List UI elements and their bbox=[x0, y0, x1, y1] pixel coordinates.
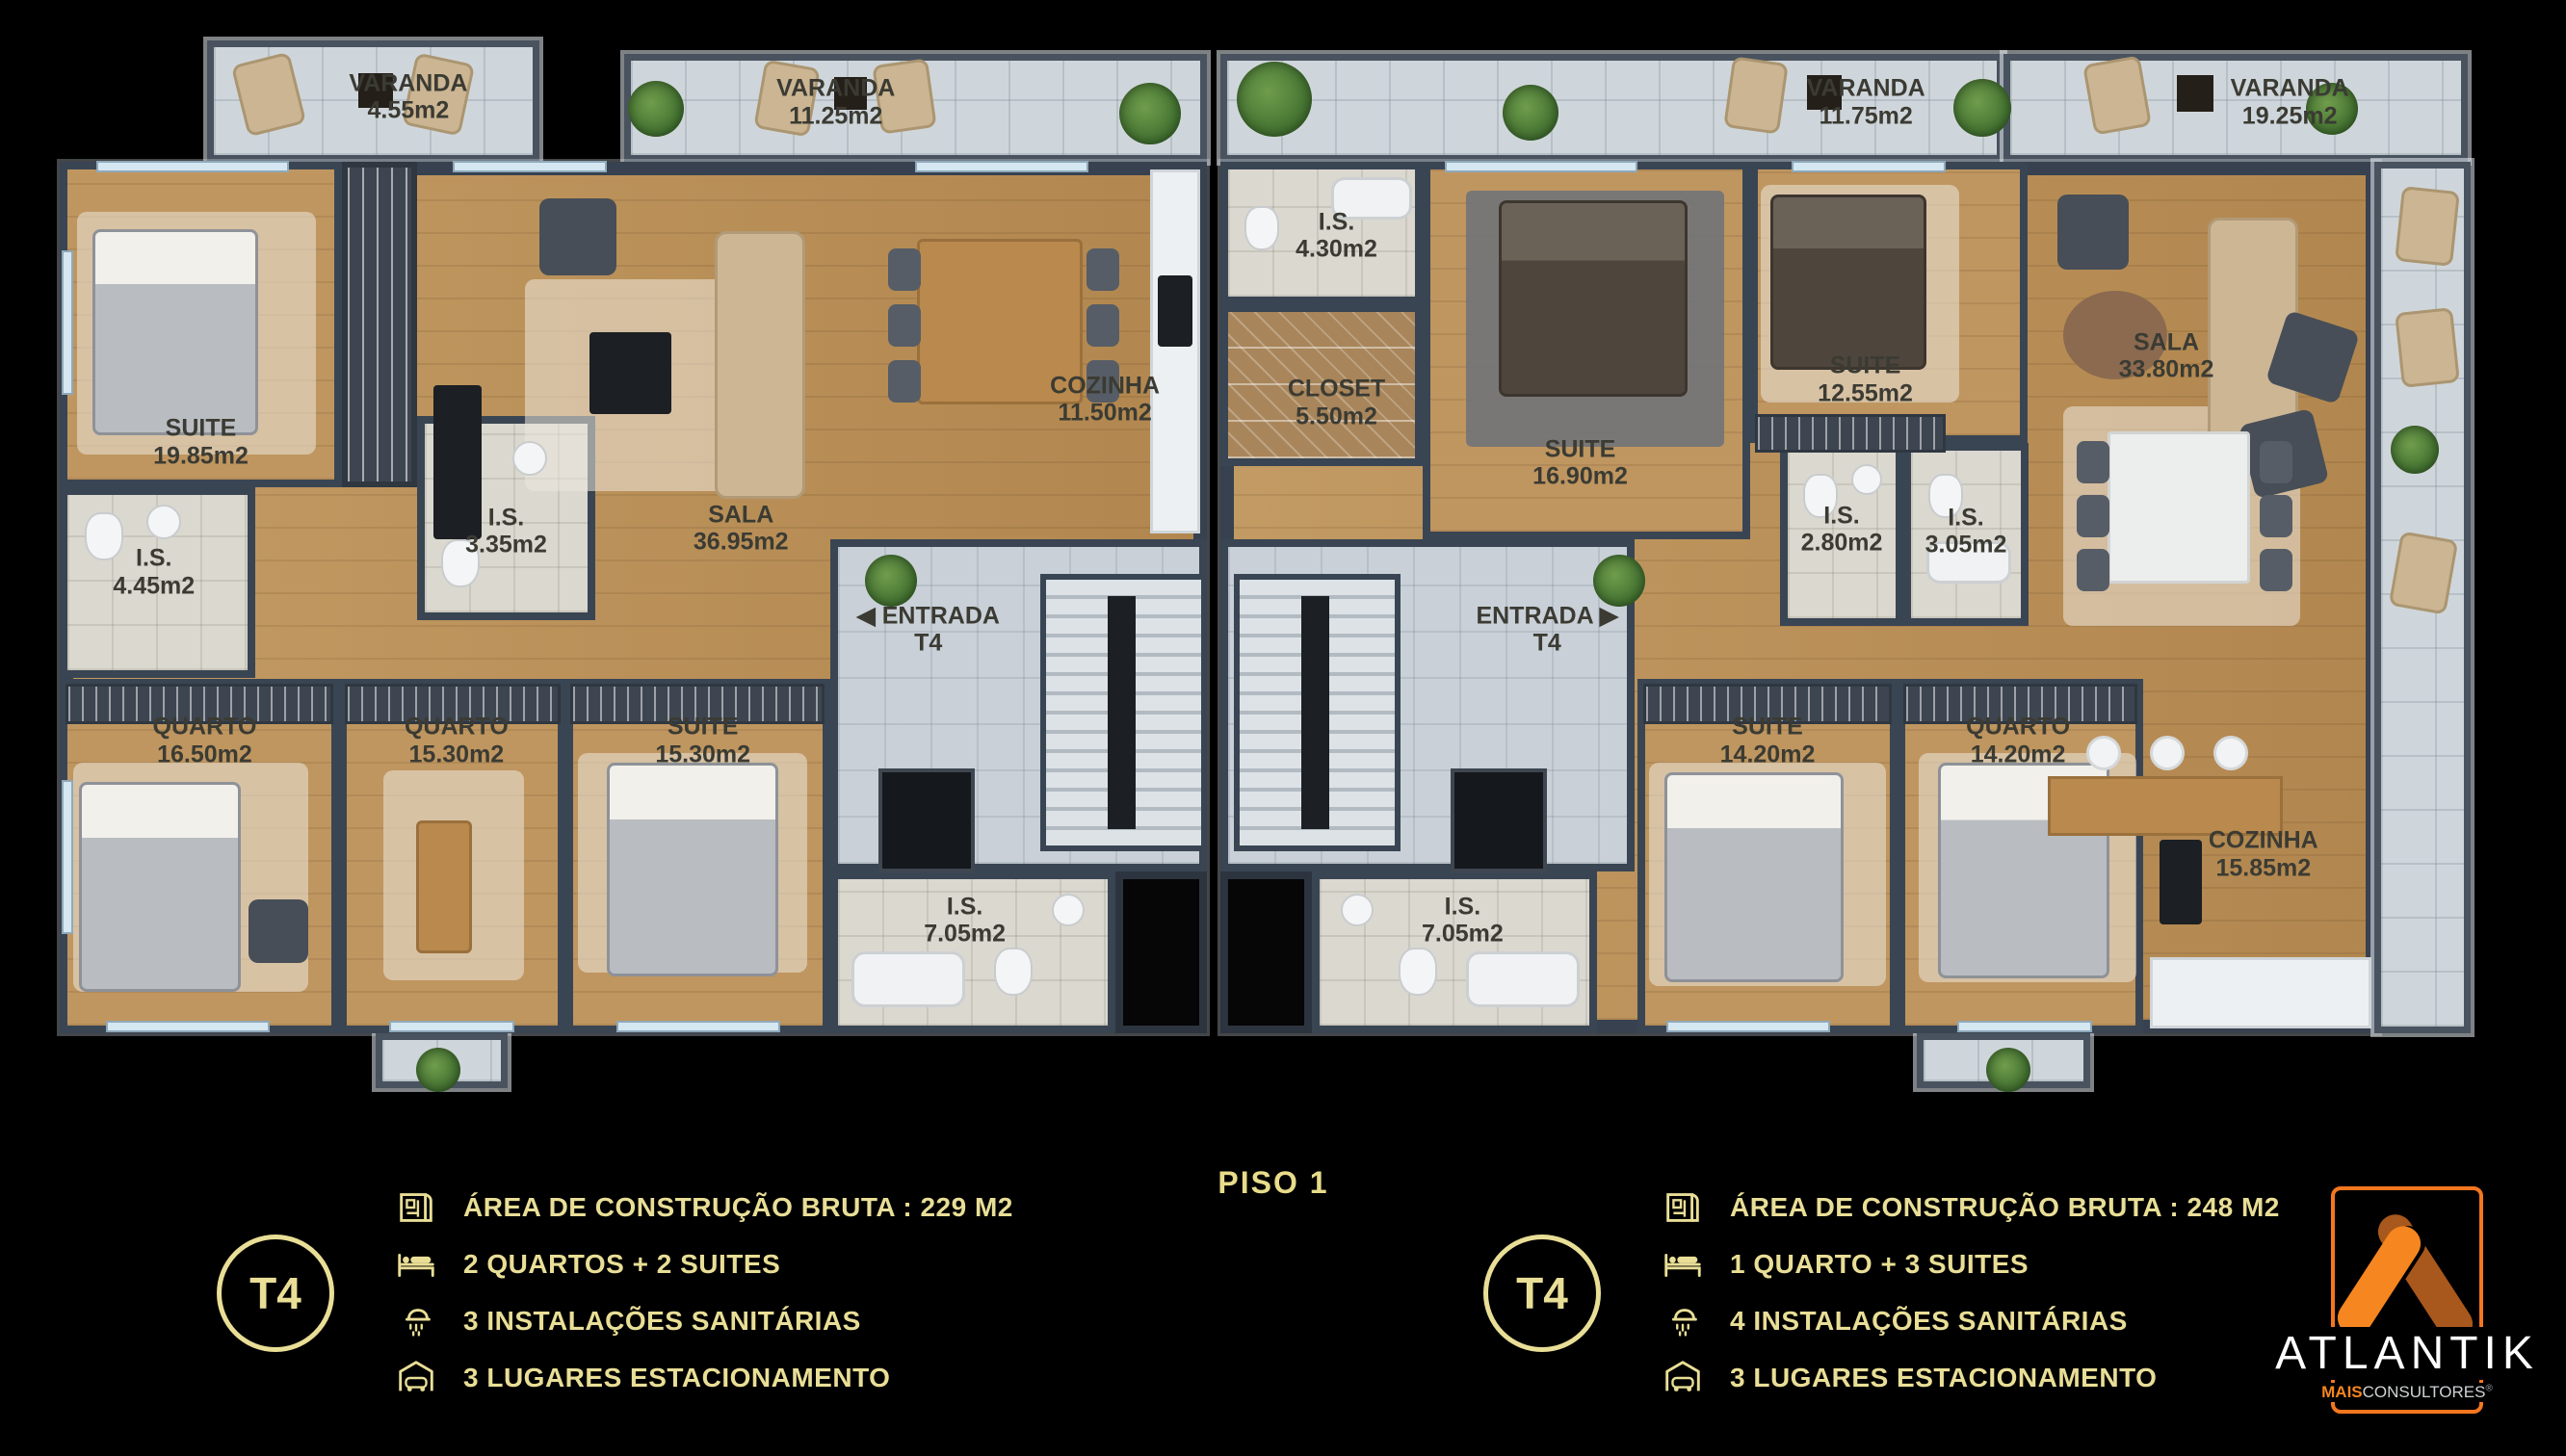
room-label-is-3-05: I.S.3.05m2 bbox=[1925, 504, 2007, 559]
window bbox=[62, 780, 73, 934]
window bbox=[389, 1021, 514, 1032]
legend-item: 3 LUGARES ESTACIONAMENTO bbox=[1661, 1357, 2280, 1399]
chair bbox=[1087, 360, 1119, 403]
stool bbox=[2213, 736, 2248, 770]
counter bbox=[2150, 957, 2371, 1028]
bed bbox=[92, 229, 258, 435]
legend-item: 4 INSTALAÇÕES SANITÁRIAS bbox=[1661, 1300, 2280, 1342]
room-stairs-right bbox=[1234, 574, 1401, 851]
t4-badge: T4 bbox=[1483, 1235, 1601, 1352]
chair bbox=[888, 248, 921, 291]
room-label-suite-19-85: SUITE19.85m2 bbox=[153, 415, 249, 470]
garage-icon bbox=[394, 1356, 438, 1400]
dark bbox=[1158, 275, 1192, 347]
plant bbox=[1119, 83, 1181, 144]
table bbox=[416, 820, 472, 953]
bedd bbox=[1499, 200, 1688, 397]
room-label-suite-12-55: SUITE12.55m2 bbox=[1818, 352, 1913, 407]
plant bbox=[1237, 62, 1312, 137]
t4-badge-label: T4 bbox=[249, 1267, 301, 1319]
legend-item: 2 QUARTOS + 2 SUITES bbox=[394, 1243, 1013, 1286]
room-void-right bbox=[1220, 871, 1312, 1033]
room-label-varanda-11-25: VARANDA11.25m2 bbox=[776, 75, 895, 130]
counter bbox=[1150, 169, 1200, 533]
elev bbox=[1451, 768, 1547, 872]
legend-item-text: 3 LUGARES ESTACIONAMENTO bbox=[1730, 1363, 2157, 1393]
tableW bbox=[2108, 431, 2250, 584]
lounge bbox=[2395, 307, 2460, 388]
bed-icon bbox=[394, 1242, 438, 1287]
closet bbox=[1755, 414, 1946, 453]
chair bbox=[2077, 495, 2109, 537]
room-label-quarto-14-20: QUARTO14.20m2 bbox=[1966, 714, 2070, 768]
window bbox=[1792, 161, 1946, 172]
plant bbox=[628, 81, 684, 137]
table bbox=[917, 239, 1083, 404]
legend-item: 3 INSTALAÇÕES SANITÁRIAS bbox=[394, 1300, 1013, 1342]
legend-item: ÁREA DE CONSTRUÇÃO BRUTA : 229 M2 bbox=[394, 1186, 1013, 1229]
arm bbox=[2057, 195, 2129, 270]
room-label-suite-16-90: SUITE16.90m2 bbox=[1532, 435, 1628, 490]
sink bbox=[512, 441, 547, 476]
sink bbox=[1341, 894, 1374, 926]
wc bbox=[994, 948, 1033, 996]
legend-item-text: ÁREA DE CONSTRUÇÃO BRUTA : 248 M2 bbox=[1730, 1192, 2280, 1223]
plant bbox=[416, 1048, 460, 1092]
legend-items: ÁREA DE CONSTRUÇÃO BRUTA : 229 M22 QUART… bbox=[394, 1186, 1013, 1399]
bed bbox=[607, 763, 778, 976]
bed bbox=[79, 782, 241, 992]
lounge bbox=[2395, 186, 2460, 267]
pouf bbox=[2063, 291, 2167, 379]
legend-item-text: 2 QUARTOS + 2 SUITES bbox=[463, 1249, 780, 1280]
legend-items: ÁREA DE CONSTRUÇÃO BRUTA : 248 M21 QUART… bbox=[1661, 1186, 2280, 1399]
plant bbox=[1953, 79, 2011, 137]
chair bbox=[2077, 441, 2109, 483]
legend-right-unit: T4 ÁREA DE CONSTRUÇÃO BRUTA : 248 M21 QU… bbox=[1483, 1186, 2280, 1399]
room-label-suite-14-20: SUITE14.20m2 bbox=[1720, 714, 1816, 768]
logo-tagline-rest: CONSULTORES bbox=[2363, 1383, 2486, 1401]
chair bbox=[888, 360, 921, 403]
room-label-entrada-right: ENTRADA ▶T4 bbox=[1476, 602, 1617, 657]
t4-badge: T4 bbox=[217, 1235, 334, 1352]
room-label-varanda-19-25: VARANDA19.25m2 bbox=[2231, 75, 2349, 130]
room-void-left bbox=[1115, 871, 1207, 1033]
window bbox=[616, 1021, 780, 1032]
chair bbox=[1087, 248, 1119, 291]
window bbox=[96, 161, 289, 172]
room-label-closet-5-50: CLOSET5.50m2 bbox=[1288, 376, 1385, 430]
wc bbox=[1244, 206, 1279, 250]
wc bbox=[1399, 948, 1437, 996]
legend-item-text: 3 LUGARES ESTACIONAMENTO bbox=[463, 1363, 890, 1393]
tub bbox=[1466, 951, 1580, 1007]
chair bbox=[2077, 549, 2109, 591]
chair bbox=[2260, 549, 2292, 591]
chair bbox=[888, 304, 921, 347]
bed-icon bbox=[1661, 1242, 1705, 1287]
room-label-varanda-4-55: VARANDA4.55m2 bbox=[349, 69, 467, 124]
plant bbox=[1503, 85, 1558, 141]
room-label-is-4-30: I.S.4.30m2 bbox=[1296, 208, 1377, 263]
room-label-is-3-35: I.S.3.35m2 bbox=[465, 504, 547, 559]
room-label-is-4-45: I.S.4.45m2 bbox=[113, 545, 195, 600]
atlantik-logo: ATLANTIK MAISCONSULTORES® bbox=[2331, 1186, 2483, 1414]
plant bbox=[2391, 426, 2439, 474]
room-label-quarto-16-50: QUARTO16.50m2 bbox=[153, 714, 257, 768]
registered-mark: ® bbox=[2485, 1383, 2492, 1393]
lounge bbox=[2082, 55, 2152, 135]
room-varanda-19-25: VARANDA19.25m2 bbox=[2003, 54, 2468, 162]
legend-left-unit: T4 ÁREA DE CONSTRUÇÃO BRUTA : 229 M22 QU… bbox=[217, 1186, 1013, 1399]
room-label-is-2-80: I.S.2.80m2 bbox=[1801, 502, 1883, 557]
t4-badge-label: T4 bbox=[1516, 1267, 1568, 1319]
plant bbox=[865, 555, 917, 607]
window bbox=[1957, 1021, 2092, 1032]
floor-plan: VARANDA4.55m2VARANDA11.25m2VARANDA11.75m… bbox=[0, 0, 2566, 1098]
island bbox=[2048, 776, 2283, 836]
window bbox=[62, 250, 73, 395]
legend-item-text: 1 QUARTO + 3 SUITES bbox=[1730, 1249, 2029, 1280]
room-label-varanda-11-75: VARANDA11.75m2 bbox=[1807, 75, 1925, 130]
room-closet-5-50: CLOSET5.50m2 bbox=[1220, 304, 1423, 466]
bed bbox=[1664, 772, 1844, 982]
sink bbox=[1851, 464, 1882, 495]
legend-item: ÁREA DE CONSTRUÇÃO BRUTA : 248 M2 bbox=[1661, 1186, 2280, 1229]
room-label-is-7-05-left: I.S.7.05m2 bbox=[924, 893, 1006, 948]
chair bbox=[1087, 304, 1119, 347]
elev bbox=[878, 768, 975, 872]
stool bbox=[2086, 736, 2121, 770]
room-label-quarto-15-30: QUARTO15.30m2 bbox=[405, 714, 509, 768]
room-is-3-05: I.S.3.05m2 bbox=[1903, 443, 2029, 626]
room-wardrobe-strip-left bbox=[342, 162, 417, 487]
shower-icon bbox=[394, 1299, 438, 1343]
window bbox=[915, 161, 1088, 172]
tub bbox=[851, 951, 965, 1007]
dark bbox=[2160, 840, 2202, 924]
logo-name: ATLANTIK bbox=[2265, 1327, 2549, 1380]
window bbox=[1666, 1021, 1830, 1032]
room-is-2-80: I.S.2.80m2 bbox=[1780, 443, 1903, 626]
garage-icon bbox=[1661, 1356, 1705, 1400]
window bbox=[1445, 161, 1637, 172]
arm bbox=[539, 198, 616, 275]
stool bbox=[2150, 736, 2185, 770]
room-label-entrada-left: ◀ ENTRADAT4 bbox=[857, 602, 1000, 657]
lounge bbox=[1723, 56, 1789, 134]
legend-item: 3 LUGARES ESTACIONAMENTO bbox=[394, 1357, 1013, 1399]
sink bbox=[1052, 894, 1085, 926]
window bbox=[453, 161, 607, 172]
arm bbox=[249, 899, 308, 963]
sqtable bbox=[2177, 75, 2213, 112]
chair bbox=[2260, 495, 2292, 537]
floorplan-icon bbox=[1661, 1185, 1705, 1230]
room-label-is-7-05-right: I.S.7.05m2 bbox=[1422, 893, 1504, 948]
legend-item-text: ÁREA DE CONSTRUÇÃO BRUTA : 229 M2 bbox=[463, 1192, 1013, 1223]
page: VARANDA4.55m2VARANDA11.25m2VARANDA11.75m… bbox=[0, 0, 2566, 1456]
legend-item: 1 QUARTO + 3 SUITES bbox=[1661, 1243, 2280, 1286]
room-stairs-left bbox=[1040, 574, 1207, 851]
legend-item-text: 4 INSTALAÇÕES SANITÁRIAS bbox=[1730, 1306, 2128, 1337]
logo-tagline: MAISCONSULTORES® bbox=[2316, 1383, 2499, 1402]
legend-item-text: 3 INSTALAÇÕES SANITÁRIAS bbox=[463, 1306, 861, 1337]
dark bbox=[589, 332, 671, 414]
shower-icon bbox=[1661, 1299, 1705, 1343]
sofa bbox=[715, 231, 805, 499]
room-varanda-11-75: VARANDA11.75m2 bbox=[1220, 54, 2003, 162]
page-title: PISO 1 bbox=[1218, 1165, 1328, 1201]
window bbox=[106, 1021, 270, 1032]
chair bbox=[2260, 441, 2292, 483]
logo-tagline-bold: MAIS bbox=[2321, 1383, 2363, 1401]
plant bbox=[1593, 555, 1645, 607]
sink bbox=[146, 505, 181, 539]
room-label-suite-15-30: SUITE15.30m2 bbox=[655, 714, 750, 768]
floorplan-icon bbox=[394, 1185, 438, 1230]
bedd bbox=[1770, 195, 1926, 370]
plant bbox=[1986, 1048, 2030, 1092]
